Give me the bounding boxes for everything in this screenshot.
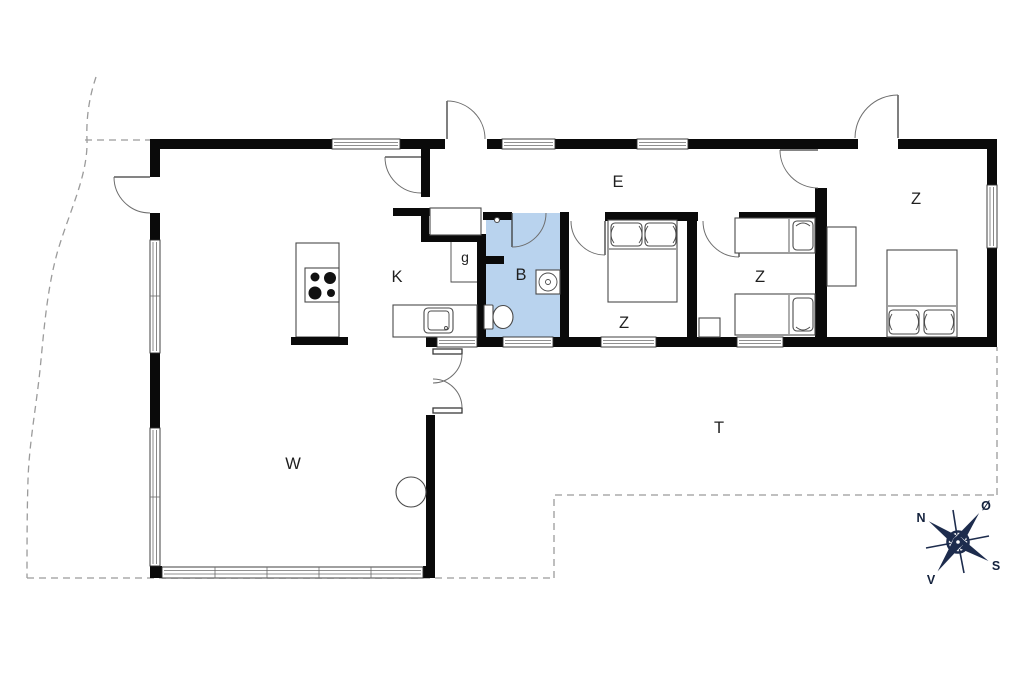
label-bedroom-middle: Z [619, 314, 629, 332]
door-bedroom-twin [703, 221, 739, 257]
nightstand [699, 318, 720, 337]
island-base [291, 337, 348, 345]
door-bedroom-right [780, 150, 818, 188]
label-bedroom-twin: Z [755, 268, 765, 286]
label-kitchen: K [391, 268, 402, 286]
window-bottom-bedroom-twin [737, 337, 783, 347]
property-line-west [27, 77, 96, 578]
exterior-walls [150, 139, 997, 578]
bed-double-right [887, 250, 957, 337]
floor-plan: E K g B Z Z Z W T N Ø S V [0, 0, 1024, 682]
door-entrance-main [447, 101, 485, 139]
label-terrace: T [714, 419, 724, 437]
window-bottom-kitchen [437, 337, 477, 347]
bed-double-middle [608, 220, 677, 302]
bathroom-dot [495, 218, 500, 223]
window-left-lower [150, 428, 160, 566]
compass-south-label: S [992, 559, 1000, 573]
compass-north-label: N [916, 511, 925, 525]
window-top-hall-2 [637, 139, 688, 149]
fixtures [291, 208, 957, 507]
toilet-icon [484, 305, 513, 329]
compass-rose-icon: N Ø S V [916, 499, 1000, 587]
label-living-room: W [285, 455, 301, 473]
door-bedroom-middle [571, 221, 605, 255]
window-bottom-bathroom [503, 337, 553, 347]
label-hall: E [612, 173, 623, 191]
hall-closet [430, 208, 481, 235]
door-entrance-right [855, 95, 898, 138]
window-top-hall-1 [502, 139, 555, 149]
windows [150, 139, 997, 578]
window-living-south [162, 567, 423, 578]
compass-east-label: Ø [981, 499, 991, 513]
compass-west-label: V [927, 573, 936, 587]
door-living-west [114, 177, 150, 213]
terrace-line-south [554, 495, 997, 578]
window-right-bedroom [987, 185, 997, 248]
window-bottom-bedroom-middle [601, 337, 656, 347]
label-bedroom-right: Z [911, 190, 921, 208]
double-door-terrace [433, 349, 462, 413]
window-left-upper [150, 240, 160, 353]
door-kitchen [385, 157, 421, 193]
kitchen-island [291, 243, 348, 345]
desk [827, 227, 856, 286]
kitchen-counter [393, 305, 477, 337]
wood-stove-icon [396, 477, 426, 507]
label-wardrobe-nook: g [461, 249, 469, 265]
floor-plan-canvas: E K g B Z Z Z W T N Ø S V [0, 0, 1024, 682]
shower-icon [536, 270, 560, 294]
label-bathroom: B [515, 266, 526, 284]
window-top-kitchen [332, 139, 400, 149]
